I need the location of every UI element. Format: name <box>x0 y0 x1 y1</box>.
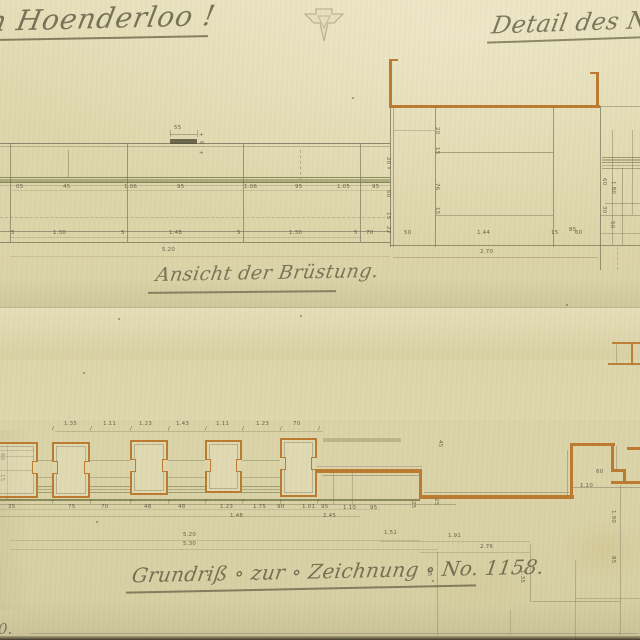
pillar-notch <box>311 457 317 470</box>
dimension-label: 15 <box>434 207 440 214</box>
drawing-line <box>0 516 360 517</box>
drawing-line <box>127 143 128 242</box>
paper-speck <box>300 315 302 317</box>
dimension-label: 1.10 <box>343 506 356 512</box>
pillar-inner-line <box>284 442 313 493</box>
dimension-label: ∕ <box>168 427 170 433</box>
drawing-line <box>10 237 362 238</box>
dimension-label: 25 <box>410 501 416 508</box>
drawing-line <box>620 485 621 635</box>
paper-speck <box>83 372 85 374</box>
pillar-notch <box>32 461 38 474</box>
dimension-label: 1.05 <box>337 185 350 191</box>
dimension-label: 1.44 <box>477 231 490 237</box>
dimension-label: ∕ <box>242 500 244 506</box>
paper-speck <box>96 521 98 523</box>
drawing-line <box>600 215 640 216</box>
dimension-label: 48 <box>144 505 151 511</box>
pillar-inner-line <box>134 444 164 491</box>
dimension-label: 1.48 <box>230 514 243 520</box>
drawing-line <box>419 470 422 498</box>
drawing-line <box>590 72 599 74</box>
dimension-label: ∕ <box>52 427 54 433</box>
drawing-line <box>390 245 640 246</box>
dimension-label: 55 <box>174 126 181 132</box>
dimension-label: 5 <box>354 231 358 237</box>
dimension-label: 2.70 <box>480 250 493 256</box>
drawing-line <box>570 446 573 498</box>
drawing-line <box>333 473 334 505</box>
drawing-line <box>380 541 530 542</box>
dimension-label: 60 <box>596 470 603 476</box>
dimension-label: 5 <box>121 231 125 237</box>
dimension-label: ∕ <box>130 500 132 506</box>
drawing-line <box>242 460 280 461</box>
pillar-inner-line <box>56 446 86 494</box>
dimension-label: 1.75 <box>253 505 266 511</box>
drawing-line <box>38 489 52 490</box>
dimension-label: ∕ <box>205 427 207 433</box>
drawing-line <box>360 143 361 242</box>
drawing-line <box>90 489 130 490</box>
drawing-line <box>38 492 52 493</box>
dimension-label: 76 <box>434 183 440 190</box>
dimension-label: 22 <box>385 226 391 233</box>
corner-note: 0. <box>0 620 12 638</box>
drawing-line <box>0 242 390 243</box>
dimension-label: 1.51 <box>384 531 397 537</box>
drawing-line <box>168 460 205 461</box>
drawing-line <box>510 610 511 635</box>
dimension-label: 1.43 <box>176 422 189 428</box>
drawing-line <box>553 107 554 247</box>
dimension-label: 5.20 <box>162 248 175 254</box>
dimension-label: 2.76 <box>480 545 493 551</box>
dimension-label: 70 <box>366 231 373 237</box>
dimension-label: + <box>199 133 204 139</box>
pillar-notch <box>130 459 136 472</box>
drawing-line <box>435 152 553 153</box>
dimension-label: 15 <box>434 147 440 154</box>
drawing-line <box>242 477 280 478</box>
drawing-line <box>435 215 553 216</box>
dimension-label: 1.91 <box>448 534 461 540</box>
dimension-label: ∕ <box>242 427 244 433</box>
drawing-line <box>602 165 640 166</box>
dimension-label: 85 <box>610 556 616 563</box>
pillar-notch <box>280 457 286 470</box>
dimension-label: 70 <box>101 505 108 511</box>
dimension-label: 6 <box>198 141 204 145</box>
dimension-label: 1.30 <box>289 231 302 237</box>
drawing-line <box>170 130 171 137</box>
drawing-line <box>323 438 401 442</box>
drawing-line <box>389 60 392 107</box>
drawing-line <box>0 182 390 183</box>
dimension-label: 15 <box>551 231 558 237</box>
paper-speck <box>352 97 354 99</box>
drawing-line <box>419 495 574 499</box>
drawing-line <box>55 431 323 432</box>
dimension-label: 45 <box>63 185 70 191</box>
dimension-label: ∕ <box>205 500 207 506</box>
dimension-label: ∕ <box>52 500 54 506</box>
dimension-label: 20 <box>434 127 440 134</box>
drawing-line <box>317 466 422 467</box>
dimension-label: 95 <box>372 185 379 191</box>
dimension-label: ∕ <box>280 500 282 506</box>
drawing-line <box>170 134 197 135</box>
drawing-line <box>602 162 640 163</box>
dimension-label: ∕ <box>90 500 92 506</box>
paper-speck <box>118 318 120 320</box>
dimension-label: 1.10 <box>580 484 593 490</box>
pillar-inner-line <box>0 446 34 494</box>
dimension-label: 75 <box>68 505 75 511</box>
drawing-line <box>617 247 618 270</box>
drawing-line <box>38 486 52 487</box>
dimension-label: 1.11 <box>103 422 116 428</box>
plan-pillar <box>205 440 242 493</box>
drawing-line <box>10 143 11 242</box>
drawing-line <box>393 130 435 131</box>
drawing-line <box>90 486 130 487</box>
dimension-label: 5 <box>11 231 15 237</box>
dimension-label: 2.45 <box>323 514 336 520</box>
drawing-line <box>322 475 420 476</box>
dimension-label: 1.48 <box>169 231 182 237</box>
drawing-line <box>68 150 69 178</box>
drawing-line <box>0 307 640 308</box>
dimension-label: 05 <box>16 185 23 191</box>
drawing-line <box>0 499 420 501</box>
dimension-label: 1.11 <box>216 422 229 428</box>
drawing-layer: 05451.06951.06951.059551.3051.4851.30570… <box>0 0 640 640</box>
drawing-line <box>317 469 422 473</box>
drawing-line <box>10 540 420 541</box>
drawing-line <box>608 363 640 365</box>
dimension-label: 1.06 <box>244 185 257 191</box>
drawing-line <box>0 217 390 218</box>
drawing-line <box>393 257 598 258</box>
dimension-label: ∕ <box>317 500 319 506</box>
dimension-label: 50 <box>609 221 615 228</box>
dimension-label: ∕ <box>168 500 170 506</box>
dimension-label: + <box>199 151 204 157</box>
dimension-label: 1.06 <box>124 185 137 191</box>
dimension-label: 1.30 <box>53 231 66 237</box>
drawing-line <box>38 477 52 478</box>
drawing-line <box>567 450 568 495</box>
drawing-line <box>242 486 280 487</box>
drawing-line <box>352 473 353 505</box>
pillar-notch <box>205 459 211 472</box>
dimension-label: 95 <box>321 505 328 511</box>
dimension-label: 1.35 <box>64 422 77 428</box>
drawing-line <box>10 256 390 257</box>
drawing-line <box>393 107 394 247</box>
drawing-line <box>575 560 576 640</box>
dimension-label: ∕ <box>318 427 320 433</box>
dimension-label: 95 <box>177 185 184 191</box>
dimension-label: 50 <box>404 231 411 237</box>
drawing-line <box>616 446 617 470</box>
dimension-label: 45 <box>437 440 443 447</box>
drawing-line <box>627 447 640 450</box>
drawing-line <box>570 443 615 446</box>
drawing-line <box>242 489 280 490</box>
drawing-line <box>605 203 640 204</box>
paper-speck <box>566 304 568 306</box>
dimension-label: 1.23 <box>256 422 269 428</box>
drawing-line <box>596 73 599 106</box>
drawing-line <box>600 106 640 107</box>
dimension-label: 48 <box>178 505 185 511</box>
plan-pillar <box>130 440 168 495</box>
dimension-label: 20 <box>385 157 391 164</box>
dimension-label: 1.23 <box>139 422 152 428</box>
dimension-label: ∕ <box>90 427 92 433</box>
drawing-line <box>389 105 600 108</box>
dimension-label: 95 <box>295 185 302 191</box>
dimension-label: 90 <box>277 505 284 511</box>
drawing-line <box>424 492 569 493</box>
drawing-line <box>30 633 638 634</box>
drawing-line <box>611 443 614 472</box>
drawing-line <box>90 492 130 493</box>
dimension-label: 60 <box>385 190 391 197</box>
drawing-line <box>168 489 205 490</box>
dimension-label: 35 <box>8 505 15 511</box>
dimension-label: 1.01 <box>302 505 315 511</box>
drawing-line <box>600 233 640 234</box>
dimension-label: 1.90 <box>610 510 616 523</box>
drawing-line <box>170 139 197 144</box>
drawing-line <box>168 486 205 487</box>
paper-speck <box>388 167 390 169</box>
pillar-notch <box>84 461 90 474</box>
drawing-line <box>0 146 390 147</box>
plan-pillar <box>0 442 38 498</box>
dimension-label: 85 <box>569 228 576 234</box>
drawing-line <box>532 601 620 602</box>
dimension-label: 5.20 <box>183 533 196 539</box>
dimension-label: 30 <box>601 206 607 213</box>
dimension-label: ∕ <box>130 427 132 433</box>
drawing-line <box>602 159 640 161</box>
drawing-line <box>616 344 617 364</box>
dimension-label: 1.80 <box>610 181 616 194</box>
drawing-line <box>90 477 130 478</box>
dimension-label: 5.30 <box>183 542 196 548</box>
drawing-line <box>242 492 280 493</box>
pillar-inner-line <box>209 444 238 489</box>
drawing-sheet: n Hoenderloo ! Detail des Nord 05451.069… <box>0 0 640 640</box>
drawing-line <box>0 177 390 178</box>
pillar-notch <box>52 461 58 474</box>
drawing-line <box>300 150 301 180</box>
drawing-line <box>90 460 130 461</box>
dimension-label: 5 <box>237 231 241 237</box>
drawing-line <box>575 598 640 599</box>
drawing-line <box>10 549 438 550</box>
drawing-line <box>611 481 640 484</box>
pillar-notch <box>162 459 168 472</box>
dimension-label: ∕ <box>280 427 282 433</box>
elevation-caption: Ansicht der Brüstung. <box>154 260 380 286</box>
pillar-notch <box>236 459 242 472</box>
dimension-label: 95 <box>370 506 377 512</box>
dimension-label: 70 <box>293 422 300 428</box>
drawing-line <box>631 342 633 365</box>
plan-pillar <box>280 438 317 497</box>
dimension-label: 1.23 <box>220 505 233 511</box>
dimension-label: 15 <box>385 212 391 219</box>
drawing-line <box>38 460 52 461</box>
drawing-line <box>168 477 205 478</box>
dimension-label: 25 <box>433 498 439 505</box>
drawing-line <box>602 157 640 158</box>
drawing-line <box>168 492 205 493</box>
drawing-line <box>602 168 640 169</box>
dimension-label: 60 <box>601 178 607 185</box>
drawing-line <box>197 130 198 137</box>
drawing-line <box>243 143 244 242</box>
plan-pillar <box>52 442 90 498</box>
drawing-line <box>0 185 390 186</box>
